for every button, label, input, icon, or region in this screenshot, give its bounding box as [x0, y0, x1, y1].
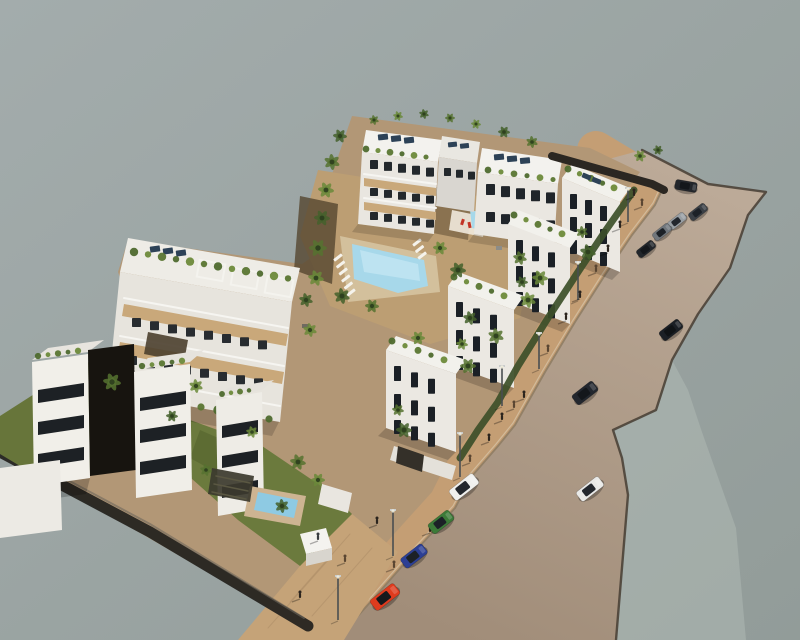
palm-crown-center — [402, 428, 407, 433]
lowrise-2-roof-bushes-bush-4 — [179, 358, 185, 364]
pedestrian-head — [547, 345, 550, 348]
terraced-roof-garden-bush-8 — [242, 267, 250, 275]
street-block-1-roof-bushes-bush-4 — [611, 184, 618, 191]
pedestrian-head — [501, 413, 504, 416]
street-block-4-windows-3-item-2 — [428, 433, 435, 447]
lowrise-2-roof-bushes-bush-0 — [139, 363, 145, 369]
lowrise-2-roof-bushes-bush-1 — [150, 362, 155, 367]
street-block-4-windows-3-item-1 — [411, 426, 418, 440]
top-block-a-windows-3-item-4 — [426, 220, 434, 228]
palm-crown-center — [109, 379, 114, 384]
top-block-a-windows-1-item-3 — [412, 166, 420, 175]
pedestrian-body — [523, 393, 525, 398]
pedestrian-body — [469, 457, 471, 462]
top-block-a-roof-bushes-bush-2 — [387, 149, 394, 156]
top-block-a-windows-2-item-1 — [384, 190, 392, 198]
street-block-4-windows-2-item-1 — [411, 400, 418, 415]
top-block-a-windows-3-item-3 — [412, 218, 420, 226]
palm-crown-center — [250, 430, 254, 434]
street-block-3-roof-bushes-bush-2 — [476, 283, 483, 290]
retaining-wall-white — [0, 460, 62, 538]
pedestrian-head — [469, 455, 472, 458]
architectural-render-figure: Aerial 3D architectural rendering of a w… — [0, 0, 800, 640]
palm-crown-center — [520, 280, 524, 284]
street-block-4-roof-bushes-bush-3 — [428, 352, 433, 357]
top-block-c-windows-1-item-1 — [501, 186, 510, 197]
palm-crown-center — [502, 130, 506, 134]
top-block-b-face — [436, 157, 477, 212]
top-block-c-windows-1-item-0 — [486, 184, 495, 195]
palm-crown-center — [330, 160, 335, 165]
top-block-a-windows-2-item-0 — [370, 188, 378, 196]
top-block-a-roof-bushes-bush-3 — [399, 151, 404, 156]
palm-crown-center — [304, 298, 308, 302]
street-block-2-roof-bushes-bush-4 — [559, 230, 566, 237]
palm-crown-center — [204, 468, 208, 472]
terraced-roof-garden-bush-2 — [158, 253, 166, 261]
top-block-b-solar-item-1 — [460, 143, 469, 149]
street-block-2-windows-1-item-2 — [548, 252, 555, 267]
pedestrian-head — [523, 391, 526, 394]
top-block-c-solar-item-0 — [494, 154, 504, 161]
street-block-2-windows-2-item-2 — [548, 278, 555, 293]
palm-crown-center — [518, 256, 522, 260]
palm-crown-center — [396, 408, 400, 412]
top-block-c-solar-item-1 — [507, 155, 517, 162]
pedestrian-head — [299, 591, 302, 594]
top-block-c-roof-bushes-bush-3 — [524, 173, 529, 178]
scene-root — [0, 0, 800, 640]
street-block-2-windows-1-item-1 — [532, 246, 539, 261]
top-block-a-roof-bushes-bush-5 — [423, 154, 428, 159]
top-block-a-solar-item-1 — [391, 135, 402, 142]
top-block-c-roof-bushes-bush-2 — [511, 170, 518, 177]
street-block-1-windows-1-item-2 — [600, 206, 607, 221]
palm-crown-center — [170, 414, 174, 418]
pedestrian-head — [344, 555, 347, 558]
pedestrian-head — [488, 434, 491, 437]
stair-core-dark — [88, 344, 136, 476]
palm-crown-center — [456, 268, 461, 273]
pedestrian-body — [299, 593, 301, 598]
street-block-3-windows-3-item-2 — [490, 369, 497, 383]
terraced-windows-2-item-5 — [218, 372, 227, 381]
palm-crown-center — [315, 245, 320, 250]
terraced-windows-1-item-6 — [240, 337, 249, 346]
palm-crown-center — [296, 460, 301, 465]
palm-crown-center — [438, 246, 442, 250]
pedestrian-head — [393, 561, 396, 564]
terraced-roof-garden-bush-7 — [229, 266, 235, 272]
lamp-light — [576, 261, 579, 264]
pedestrian-head — [633, 189, 636, 192]
street-block-1-roof-bushes-bush-0 — [565, 166, 572, 173]
pedestrian-body — [317, 535, 319, 540]
terraced-windows-1-item-3 — [186, 328, 195, 337]
terraced-windows-1-item-4 — [204, 331, 213, 340]
pedestrian-body — [607, 247, 609, 252]
street-block-3-windows-1-item-2 — [490, 315, 497, 330]
palm-crown-center — [657, 149, 660, 152]
palm-crown-center — [580, 230, 584, 234]
street-block-3-roof-bushes-bush-1 — [464, 279, 469, 284]
terraced-roof-garden-bush-5 — [201, 261, 207, 267]
pedestrian-head — [607, 245, 610, 248]
street-block-3-roof-bushes-bush-3 — [489, 288, 494, 293]
top-block-c-windows-2-item-1 — [501, 214, 510, 224]
pedestrian-body — [393, 563, 395, 568]
palm-crown-center — [324, 188, 329, 193]
pedestrian-body — [633, 191, 635, 196]
street-block-4-windows-1-item-2 — [428, 379, 435, 394]
pedestrian-body — [513, 403, 515, 408]
pedestrian-head — [595, 265, 598, 268]
lamp-light — [500, 365, 503, 368]
street-block-1-windows-1-item-1 — [585, 200, 592, 215]
pedestrian-head — [641, 199, 644, 202]
palm-crown-center — [370, 304, 374, 308]
street-block-4-roof-bushes-bush-4 — [441, 356, 448, 363]
pedestrian-body — [579, 293, 581, 298]
palm-crown-center — [397, 115, 400, 118]
top-block-a-windows-3-item-0 — [370, 212, 378, 220]
render-canvas — [0, 0, 800, 640]
top-block-a-windows-3-item-2 — [398, 216, 406, 224]
terraced-roof-garden-bush-4 — [186, 257, 194, 265]
palm-crown-center — [416, 336, 420, 340]
street-block-1-windows-1-item-0 — [570, 194, 577, 209]
palm-crown-center — [638, 154, 642, 158]
patio-table-1 — [496, 246, 502, 250]
terraced-roof-garden-bush-11 — [285, 275, 291, 281]
pedestrian-body — [501, 415, 503, 420]
pedestrian-head — [513, 401, 516, 404]
pedestrian-body — [641, 201, 643, 206]
street-block-2-roof-bushes-bush-1 — [523, 217, 528, 222]
pedestrian-head — [619, 221, 622, 224]
street-block-2-roof-bushes-bush-3 — [547, 226, 552, 231]
lowrise-3-roof-bushes-bush-3 — [247, 388, 251, 392]
palm-crown-center — [308, 328, 312, 332]
courtyard-shadow-1 — [294, 196, 338, 284]
top-block-c-roof-bushes-bush-1 — [498, 169, 503, 174]
top-block-b-windows-item-2 — [468, 172, 475, 180]
lowrise-1-roof-bushes-bush-3 — [66, 350, 71, 355]
palm-crown-center — [280, 504, 284, 508]
top-block-b-windows-item-0 — [444, 168, 451, 176]
top-block-c-windows-2-item-0 — [486, 212, 495, 222]
terraced-roof-garden-bush-6 — [214, 262, 222, 270]
top-block-a-windows-2-item-3 — [412, 194, 420, 202]
lamp-light — [336, 575, 339, 578]
palm-crown-center — [460, 342, 464, 346]
terraced-roof-garden-bush-0 — [130, 248, 138, 256]
top-block-a-windows-2-item-2 — [398, 192, 406, 200]
top-block-a-roof-bushes-bush-0 — [363, 146, 370, 153]
top-block-a-windows-2-item-4 — [426, 196, 434, 204]
top-block-a-roof-bushes-bush-4 — [411, 152, 418, 159]
palm-crown-center — [530, 140, 534, 144]
street-block-4-roof-bushes-bush-2 — [415, 347, 422, 354]
pedestrian-body — [619, 223, 621, 228]
lowrise-3-roof-bushes-bush-0 — [219, 391, 225, 397]
lowrise-1-roof-bushes-bush-0 — [35, 353, 41, 359]
pedestrian-head — [317, 533, 320, 536]
street-block-4-roof-bushes-bush-0 — [389, 338, 396, 345]
palm-crown-center — [475, 123, 478, 126]
palm-crown-center — [494, 334, 499, 339]
street-block-2-roof-bushes-bush-0 — [511, 212, 518, 219]
palm-crown-center — [449, 117, 452, 120]
top-block-c-roof-bushes-bush-5 — [550, 177, 555, 182]
palm-crown-center — [194, 384, 198, 388]
lamp-light — [626, 187, 629, 190]
lowrise-3-roof-bushes-bush-2 — [237, 389, 243, 395]
terraced-base-planting-bush-9 — [265, 415, 272, 422]
top-block-a-windows-1-item-4 — [426, 168, 434, 177]
pedestrian-body — [565, 315, 567, 320]
top-block-a-roof-bushes-bush-1 — [375, 148, 380, 153]
palm-crown-center — [314, 276, 319, 281]
terraced-roof-garden-bush-10 — [270, 272, 278, 280]
palm-crown-center — [423, 113, 426, 116]
palm-crown-center — [340, 294, 345, 299]
palm-crown-center — [586, 250, 591, 255]
palm-crown-center — [538, 276, 543, 281]
top-block-b-solar-item-0 — [448, 142, 457, 148]
palm-crown-center — [320, 216, 325, 221]
lowrise-1-roof-bushes-bush-4 — [75, 348, 81, 354]
pedestrian-body — [595, 267, 597, 272]
top-block-a-solar-item-2 — [404, 137, 415, 144]
palm-crown-center — [468, 316, 472, 320]
top-block-c-roof-bushes-bush-4 — [537, 174, 544, 181]
pedestrian-body — [344, 557, 346, 562]
palm-crown-center — [526, 298, 531, 303]
street-block-3-roof-bushes-bush-4 — [501, 292, 508, 299]
top-block-b-windows-item-1 — [456, 170, 463, 178]
terraced-windows-2-item-4 — [200, 369, 209, 378]
terraced-windows-1-item-0 — [132, 318, 141, 327]
top-block-c-windows-1-item-4 — [546, 192, 555, 203]
street-block-1-roof-bushes-bush-1 — [577, 171, 582, 176]
street-block-3-windows-2-item-2 — [490, 343, 497, 358]
palm-crown-center — [466, 364, 471, 369]
pedestrian-head — [565, 313, 568, 316]
lowrise-2-roof-bushes-bush-3 — [170, 360, 175, 365]
terraced-roof-garden-bush-3 — [173, 256, 179, 262]
street-block-4-roof-bushes-bush-1 — [402, 343, 407, 348]
pedestrian-head — [579, 291, 582, 294]
terraced-windows-1-item-2 — [168, 324, 177, 333]
street-block-4-windows-2-item-2 — [428, 407, 435, 422]
street-block-2-roof-bushes-bush-2 — [535, 221, 542, 228]
street-block-3-windows-1-item-0 — [456, 302, 463, 317]
terraced-roof-garden-bush-9 — [257, 270, 263, 276]
palm-crown-center — [338, 134, 342, 138]
top-block-c-windows-1-item-3 — [531, 190, 540, 201]
terraced-windows-2-item-6 — [236, 375, 245, 384]
street-block-4-windows-1-item-1 — [411, 372, 418, 387]
lowrise-1-roof-bushes-bush-1 — [46, 352, 51, 357]
top-block-c-roof-bushes-bush-0 — [485, 167, 492, 174]
top-block-c-solar-item-2 — [520, 157, 530, 164]
terraced-windows-1-item-5 — [222, 334, 231, 343]
top-block-a-windows-1-item-1 — [384, 162, 392, 171]
terraced-windows-1-item-1 — [150, 321, 159, 330]
pedestrian-head — [376, 517, 379, 520]
top-block-a-windows-1-item-0 — [370, 160, 378, 169]
street-block-1-windows-2-item-0 — [570, 217, 577, 232]
palm-crown-center — [373, 119, 376, 122]
lowrise-1-roof-bushes-bush-2 — [55, 350, 61, 356]
terraced-base-planting-bush-5 — [197, 403, 204, 410]
top-block-a-solar-item-0 — [378, 133, 389, 140]
pedestrian-body — [488, 436, 490, 441]
top-block-a-windows-3-item-1 — [384, 214, 392, 222]
pedestrian-body — [376, 519, 378, 524]
lowrise-2-roof-bushes-bush-2 — [159, 360, 165, 366]
lamp-light — [391, 509, 394, 512]
terraced-roof-garden-bush-1 — [145, 251, 151, 257]
pedestrian-body — [547, 347, 549, 352]
top-block-c-windows-1-item-2 — [516, 188, 525, 199]
palm-crown-center — [316, 478, 320, 482]
top-block-a-windows-1-item-2 — [398, 164, 406, 173]
street-block-4-windows-1-item-0 — [394, 366, 401, 381]
lamp-light — [537, 332, 540, 335]
street-block-3-windows-2-item-1 — [473, 336, 480, 351]
lowrise-3-roof-bushes-bush-1 — [229, 391, 233, 395]
lamp-light — [458, 432, 461, 435]
terraced-windows-1-item-7 — [258, 340, 267, 349]
